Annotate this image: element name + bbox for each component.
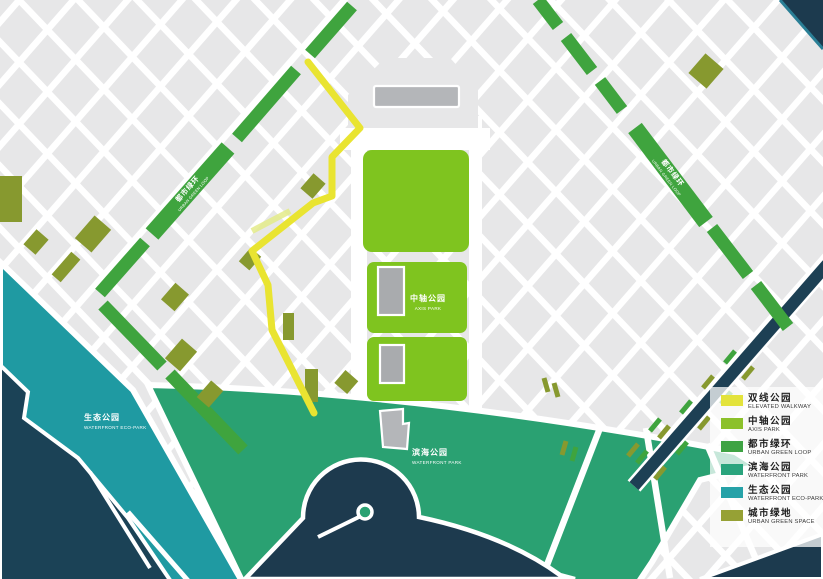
legend-item-urban-green-loop: 都市绿环 URBAN GREEN LOOP	[721, 440, 823, 459]
legend-swatch-urban-green-space	[721, 510, 743, 521]
legend-label-en: AXIS PARK	[748, 427, 792, 434]
svg-text:中轴公园: 中轴公园	[410, 293, 446, 303]
legend-item-eco-park: 生态公园 WATERFRONT ECO-PARK	[721, 486, 823, 505]
map-legend: 双线公园 ELEVATED WALKWAY 中轴公园 AXIS PARK 都市绿…	[710, 387, 823, 547]
masterplan-map: 中轴公园 AXIS PARK 滨海公园 WATERFRONT PARK 生态公园…	[0, 0, 823, 579]
legend-label-cn: 生态公园	[748, 486, 823, 496]
svg-text:WATERFRONT ECO-PARK: WATERFRONT ECO-PARK	[84, 425, 147, 430]
axis-park-building-lower	[380, 345, 404, 383]
svg-text:生态公园: 生态公园	[84, 412, 120, 422]
svg-text:WATERFRONT PARK: WATERFRONT PARK	[412, 460, 462, 465]
legend-label-cn: 城市绿地	[748, 509, 815, 519]
map-canvas: 中轴公园 AXIS PARK 滨海公园 WATERFRONT PARK 生态公园…	[0, 0, 823, 579]
legend-label-cn: 都市绿环	[748, 440, 811, 450]
legend-item-elevated-walkway: 双线公园 ELEVATED WALKWAY	[721, 394, 823, 413]
svg-text:AXIS PARK: AXIS PARK	[415, 306, 442, 311]
legend-label-en: ELEVATED WALKWAY	[748, 404, 811, 411]
legend-item-urban-green-space: 城市绿地 URBAN GREEN SPACE	[721, 509, 823, 528]
landmark-building-top	[374, 86, 459, 107]
label-axis-park: 中轴公园 AXIS PARK	[410, 293, 446, 311]
legend-label-cn: 双线公园	[748, 394, 811, 404]
legend-label-en: WATERFRONT ECO-PARK	[748, 496, 823, 503]
legend-swatch-axis-park	[721, 418, 743, 429]
legend-label-cn: 滨海公园	[748, 463, 808, 473]
legend-swatch-urban-green-loop	[721, 441, 743, 452]
legend-swatch-eco-park	[721, 487, 743, 498]
legend-label-cn: 中轴公园	[748, 417, 792, 427]
legend-swatch-elevated-walkway	[721, 395, 743, 406]
axis-park-building-upper	[378, 267, 404, 315]
legend-item-waterfront-park: 滨海公园 WATERFRONT PARK	[721, 463, 823, 482]
svg-text:滨海公园: 滨海公园	[412, 447, 448, 457]
legend-item-axis-park: 中轴公园 AXIS PARK	[721, 417, 823, 436]
legend-label-en: WATERFRONT PARK	[748, 473, 808, 480]
legend-label-en: URBAN GREEN SPACE	[748, 519, 815, 526]
legend-swatch-waterfront-park	[721, 464, 743, 475]
legend-label-en: URBAN GREEN LOOP	[748, 450, 811, 457]
